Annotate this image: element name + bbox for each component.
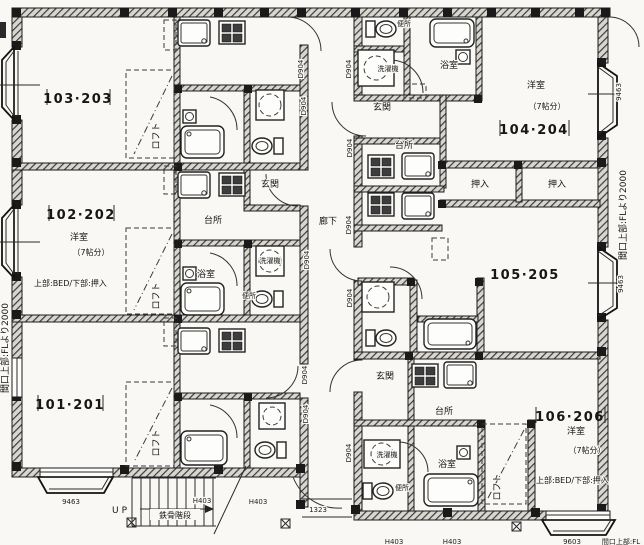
dim-d904-4: D904: [346, 138, 354, 157]
unit-104-label: 104·204: [499, 123, 569, 138]
toilet-label-104: 便所: [397, 19, 411, 28]
balcony-post-marker: [512, 522, 521, 531]
entrance-label-106: 玄関: [376, 370, 394, 382]
bathtub: [424, 319, 476, 349]
frontage-note-right: 間口上部:FLより2000: [617, 170, 629, 260]
bed-note-102: 上部:BED/下部:押入: [34, 278, 107, 288]
entrance-label-102: 玄関: [261, 178, 279, 190]
outer-walls: [12, 8, 610, 520]
size-104: （7帖分）: [528, 101, 565, 111]
toilet: [363, 483, 393, 499]
loft-label-101: ロフト: [152, 429, 162, 456]
room-western-106: 洋室: [567, 425, 585, 437]
kitchen-sink: [178, 328, 210, 354]
frontage-note-bottom: 間口上部:FL: [602, 537, 640, 545]
stove: [219, 173, 245, 196]
dim-1323: 1323: [309, 506, 327, 514]
dim-balcony-right: 9603: [563, 538, 581, 545]
dim-h403-stairs: H403: [193, 497, 212, 505]
kitchen-sink: [178, 20, 210, 46]
unit-102-label: 102·202: [46, 208, 116, 223]
toilet: [252, 291, 283, 307]
loft-label-102: ロフト: [152, 282, 162, 309]
floor-plan: 103·203 102·202 101·201 104·204 105·205 …: [0, 0, 644, 545]
corridor-label: 廊下: [319, 215, 337, 227]
size-102: （7帖分）: [72, 247, 109, 257]
kitchen-sink: [178, 172, 210, 198]
bathtub: [181, 431, 227, 465]
closet-label-right: 押入: [548, 178, 566, 190]
closet-label-left: 押入: [471, 178, 489, 190]
dim-d904-3: D904: [345, 59, 353, 78]
posts: [12, 8, 610, 517]
washer-label-104: 洗濯機: [378, 64, 399, 73]
room-western-104: 洋室: [527, 79, 545, 91]
bathtub: [181, 126, 224, 158]
stairs-up-label: UP: [112, 506, 130, 516]
unit-106-label: 106·206: [535, 410, 605, 425]
floor-plan-drawing: 103·203 102·202 101·201 104·204 105·205 …: [0, 0, 644, 545]
dim-d904-2: D904: [300, 96, 308, 115]
water-heater: [457, 446, 470, 459]
unit-106-fixtures: [363, 362, 478, 506]
washing-machine: [362, 282, 394, 312]
kitchen-sink: [402, 193, 434, 219]
unit-103-label: 103·203: [43, 92, 113, 107]
water-heater: [183, 110, 196, 123]
unit-label-ticks: [38, 89, 605, 423]
water-heater: [456, 50, 470, 64]
scan-mark: [0, 22, 6, 38]
dim-h403-bottom-1: H403: [385, 538, 404, 545]
dim-d904-7: D904: [301, 365, 309, 384]
dim-d904-10: D904: [345, 443, 353, 462]
loft-label-106: ロフト: [493, 473, 503, 500]
kitchen-label-102: 台所: [204, 214, 222, 226]
unit-105-fixtures: [362, 193, 476, 349]
stairs-name-label: 鉄骨階段: [159, 510, 191, 520]
kitchen-label-104: 台所: [395, 139, 413, 151]
dim-bay-105: 9463: [617, 275, 625, 293]
toilet: [366, 330, 396, 346]
bath-label-102: 浴室: [197, 268, 215, 280]
kitchen-sink: [444, 362, 476, 388]
toilet-label-102: 便所: [242, 291, 256, 300]
toilet: [252, 138, 283, 154]
dim-bay-104: 9463: [615, 83, 623, 101]
unit-105-label: 105·205: [490, 268, 560, 283]
dim-d904-8: D904: [302, 404, 310, 423]
dim-balcony-left: 9463: [62, 498, 80, 506]
stove: [368, 155, 394, 178]
frontage-note-left: 間口上部:FLより2000: [0, 303, 11, 393]
stove: [412, 364, 438, 387]
washing-machine: [256, 90, 284, 120]
dim-d904-5: D904: [303, 250, 311, 269]
dim-h403-bottom-2: H403: [443, 538, 462, 545]
bathtub: [430, 19, 474, 47]
washbasin: [259, 403, 285, 429]
bathtub: [424, 474, 478, 506]
stove: [219, 21, 245, 44]
bath-label-104: 浴室: [440, 59, 458, 71]
entry-post-marker: [281, 519, 290, 528]
toilet-label-106: 便所: [395, 483, 409, 492]
washer-label-102: 洗濯機: [260, 256, 281, 265]
room-western-102: 洋室: [70, 231, 88, 243]
bath-label-106: 浴室: [438, 458, 456, 470]
dim-d904-6: D904: [345, 215, 353, 234]
loft-label-103: ロフト: [152, 122, 162, 149]
entrance-label-104: 玄関: [373, 101, 391, 113]
unit-101-label: 101·201: [35, 398, 105, 413]
toilet: [255, 442, 286, 458]
stove: [219, 329, 245, 352]
dim-h403-entry: H403: [249, 498, 268, 506]
stove: [368, 193, 394, 216]
kitchen-label-106: 台所: [435, 405, 453, 417]
dim-d904-9: D904: [346, 288, 354, 307]
toilet: [366, 21, 396, 37]
labels: 103·203 102·202 101·201 104·204 105·205 …: [0, 19, 640, 545]
dim-d904-1: D904: [297, 59, 305, 78]
kitchen-sink: [402, 153, 434, 179]
water-heater: [183, 267, 196, 280]
bed-note-106: 上部:BED/下部:押入: [536, 475, 609, 485]
bathtub: [181, 283, 224, 315]
size-106: （7帖分）: [568, 445, 605, 455]
washer-label-106: 洗濯機: [377, 450, 398, 459]
